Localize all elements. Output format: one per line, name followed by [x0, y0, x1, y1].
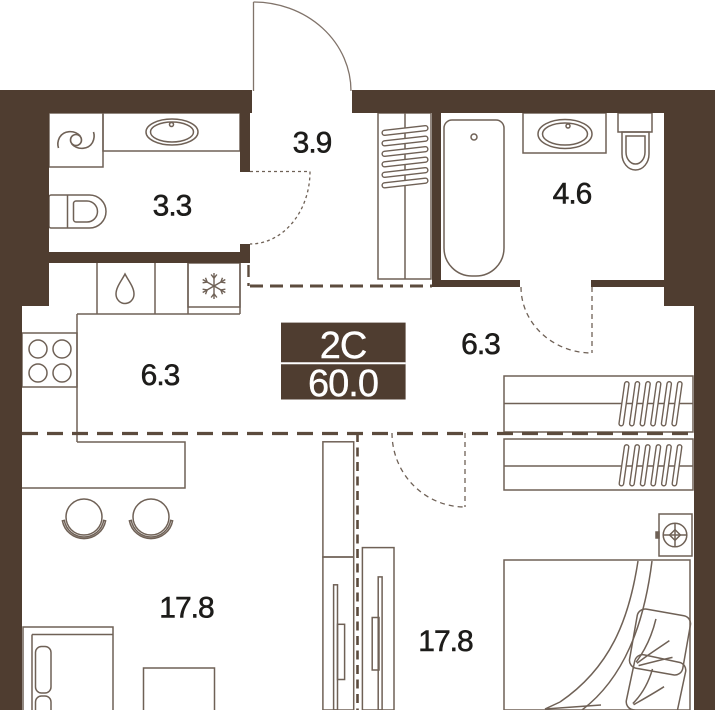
svg-text:2C: 2C	[320, 325, 367, 367]
svg-text:17.8: 17.8	[159, 592, 214, 625]
svg-text:4.6: 4.6	[553, 178, 592, 211]
svg-text:17.8: 17.8	[418, 625, 473, 658]
svg-text:3.3: 3.3	[153, 190, 192, 223]
svg-text:3.9: 3.9	[293, 127, 332, 160]
svg-text:6.3: 6.3	[461, 328, 500, 361]
svg-text:6.3: 6.3	[141, 359, 180, 392]
svg-text:60.0: 60.0	[308, 363, 378, 405]
